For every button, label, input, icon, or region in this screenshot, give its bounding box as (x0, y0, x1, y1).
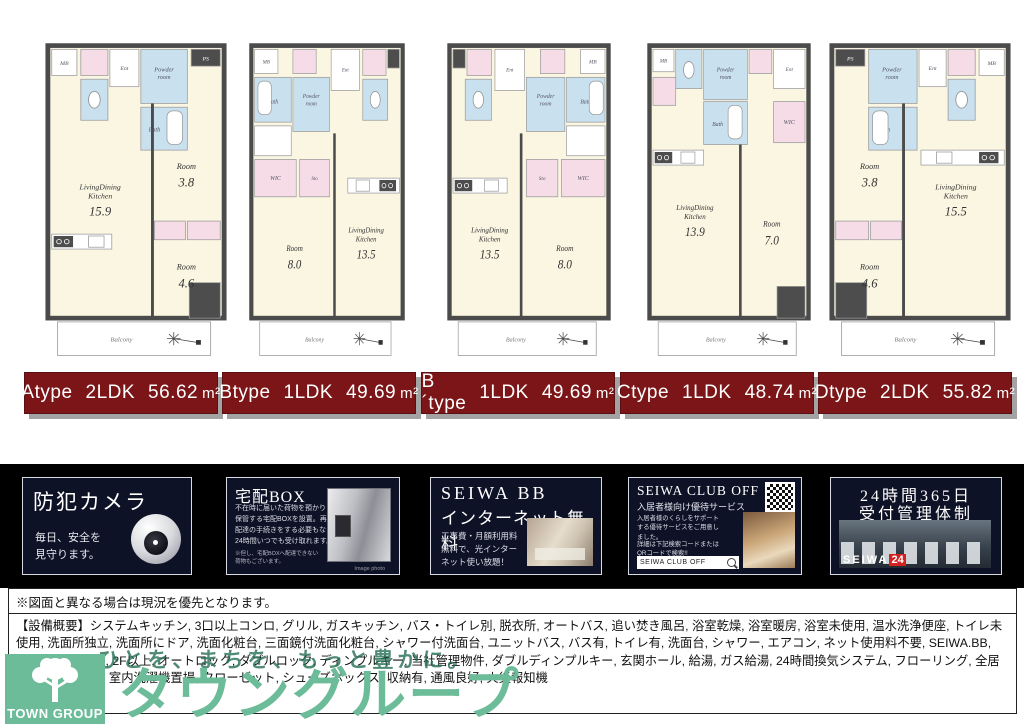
svg-text:Balcony: Balcony (110, 337, 132, 344)
svg-text:LivingDining: LivingDining (934, 182, 976, 191)
floorplan-Ctype: MBEntPowderroomBathWICLivingDiningKitche… (646, 40, 812, 362)
security-staff-photo: SEIWA24 (839, 520, 991, 568)
svg-text:Sto: Sto (311, 176, 318, 182)
qr-code-icon (765, 482, 795, 512)
feature-title: 防犯カメラ (33, 486, 148, 516)
svg-text:WIC: WIC (270, 175, 281, 182)
svg-text:room: room (306, 101, 317, 107)
svg-text:Kitchen: Kitchen (355, 235, 377, 243)
svg-text:room: room (885, 74, 899, 81)
laptop-photo (527, 518, 593, 566)
svg-text:WIC: WIC (578, 175, 590, 182)
feature-card-delivery-box: 宅配BOX 不在時に届いた荷物を預かり 保管する宅配BOXを設置。再 配達の手続… (226, 477, 400, 575)
svg-text:room: room (720, 75, 732, 81)
svg-text:PS: PS (846, 57, 854, 63)
feature-body: 入居者様のくらしをサポート する優待サービスをご用意し ました。 (637, 514, 719, 542)
svg-text:Kitchen: Kitchen (683, 213, 706, 221)
svg-text:Kitchen: Kitchen (943, 192, 968, 201)
floorplan-Atype: MBEntPSPowderroomBathLivingDiningKitchen… (44, 40, 228, 362)
svg-text:LivingDining: LivingDining (675, 204, 714, 212)
svg-text:Room: Room (762, 219, 781, 228)
svg-text:Powder: Powder (153, 67, 174, 74)
svg-text:Balcony: Balcony (706, 336, 726, 343)
svg-text:Powder: Powder (881, 67, 902, 74)
svg-text:LivingDining: LivingDining (347, 226, 384, 234)
type-label-Ctype: Ctype1LDK48.74m² (620, 372, 814, 414)
svg-text:LivingDining: LivingDining (79, 182, 121, 191)
type-label-Dtype: Dtype2LDK55.82m² (818, 372, 1012, 414)
svg-text:PS: PS (201, 57, 209, 63)
feature-card-free-internet: SEIWA BB インターネット無料 工事費・月額利用料 無料で、光インター ネ… (430, 477, 602, 575)
floorplan-Btype: MBEntBathPowderroomWICStoRoom8.0LivingDi… (248, 40, 406, 362)
svg-text:Balcony: Balcony (506, 336, 526, 343)
svg-text:MB: MB (59, 61, 69, 67)
svg-text:3.8: 3.8 (177, 176, 195, 190)
svg-text:Powder: Powder (716, 68, 735, 74)
hotel-room-photo (743, 512, 795, 568)
svg-text:13.9: 13.9 (685, 226, 705, 239)
feature-card-club-off: SEIWA CLUB OFF 入居者様向け優待サービス 入居者様のくらしをサポー… (628, 477, 802, 575)
search-keyword: SEIWA CLUB OFF (640, 559, 705, 566)
delivery-box-panel (335, 515, 351, 537)
logo-text: TOWN GROUP (5, 706, 105, 721)
town-group-logo: TOWN GROUP (5, 654, 105, 724)
svg-text:MB: MB (262, 59, 271, 65)
svg-text:15.5: 15.5 (945, 205, 967, 219)
svg-text:Powder: Powder (302, 94, 320, 100)
svg-text:MB: MB (588, 59, 597, 65)
security-camera-photo (131, 514, 181, 564)
brand-name: タウングループ (118, 650, 521, 724)
drawing-notice: ※図面と異なる場合は現況を優先となります。 (9, 589, 1016, 614)
svg-text:Room: Room (176, 263, 196, 272)
features-banner: 防犯カメラ 毎日、安全を 見守ります。 宅配BOX 不在時に届いた荷物を預かり … (0, 464, 1024, 588)
svg-text:3.8: 3.8 (861, 176, 879, 190)
seiwa24-badge: SEIWA24 (843, 554, 906, 566)
svg-text:Room: Room (859, 162, 879, 171)
camera-lens-icon (144, 531, 168, 555)
tree-icon (23, 656, 87, 702)
search-icon (727, 558, 736, 567)
type-label-B´type: B´type1LDK49.69m² (421, 372, 615, 414)
floorplan-B´type: MBEntBathPowderroomWICStoLivingDiningKit… (446, 40, 612, 362)
feature-body: 不在時に届いた荷物を預かり 保管する宅配BOXを設置。再 配達の手続きをする必要… (235, 504, 340, 547)
svg-text:13.5: 13.5 (480, 248, 500, 261)
svg-text:MB: MB (986, 61, 996, 67)
svg-text:Kitchen: Kitchen (478, 235, 501, 243)
svg-text:Ent: Ent (785, 67, 794, 73)
svg-text:Room: Room (285, 244, 303, 254)
svg-text:MB: MB (659, 58, 668, 64)
feature-card-reception: 24時間365日 受付管理体制 SEIWA24 (830, 477, 1002, 575)
svg-text:Room: Room (176, 162, 196, 171)
feature-note: ※但し、宅配BOXへ配達できない 荷物もございます。 (235, 550, 318, 567)
feature-title: SEIWA CLUB OFF (637, 483, 759, 499)
search-box-graphic: SEIWA CLUB OFF (637, 556, 739, 569)
svg-text:4.6: 4.6 (862, 277, 879, 291)
svg-text:Bath: Bath (712, 122, 723, 128)
svg-text:4.6: 4.6 (178, 277, 195, 291)
svg-text:Bath: Bath (148, 127, 160, 134)
svg-text:Room: Room (555, 244, 574, 253)
floorplan-Dtype: MBEntPSPowderroomBathLivingDiningKitchen… (828, 40, 1012, 362)
svg-text:WIC: WIC (784, 119, 796, 126)
type-label-Atype: Atype2LDK56.62m² (24, 372, 218, 414)
svg-text:Ent: Ent (505, 68, 514, 74)
svg-text:Ent: Ent (341, 68, 349, 74)
svg-text:13.5: 13.5 (357, 249, 376, 262)
svg-text:room: room (158, 74, 172, 81)
svg-text:Powder: Powder (536, 94, 555, 100)
feature-title: SEIWA BB (441, 483, 548, 504)
svg-text:Ent: Ent (928, 66, 937, 72)
real-estate-flyer: MBEntPSPowderroomBathLivingDiningKitchen… (0, 0, 1024, 724)
svg-text:LivingDining: LivingDining (470, 226, 509, 234)
type-label-Btype: Btype1LDK49.69m² (222, 372, 416, 414)
svg-text:Room: Room (859, 263, 879, 272)
feature-card-security-camera: 防犯カメラ 毎日、安全を 見守ります。 (22, 477, 192, 575)
svg-text:Balcony: Balcony (894, 337, 916, 344)
svg-text:room: room (540, 101, 552, 107)
svg-text:Ent: Ent (119, 66, 128, 72)
feature-body: 工事費・月額利用料 無料で、光インター ネット使い放題！ (441, 530, 518, 570)
svg-text:Sto: Sto (539, 176, 546, 182)
svg-text:8.0: 8.0 (288, 259, 302, 272)
feature-body: 毎日、安全を 見守ります。 (35, 530, 101, 563)
svg-text:Balcony: Balcony (305, 336, 324, 343)
svg-text:15.9: 15.9 (89, 205, 111, 219)
svg-text:7.0: 7.0 (765, 234, 779, 247)
svg-text:8.0: 8.0 (558, 258, 572, 271)
svg-text:Kitchen: Kitchen (87, 192, 112, 201)
photo-caption: Image photo (354, 566, 385, 572)
delivery-box-photo (327, 488, 391, 562)
feature-subtitle: 入居者様向け優待サービス (637, 500, 745, 513)
